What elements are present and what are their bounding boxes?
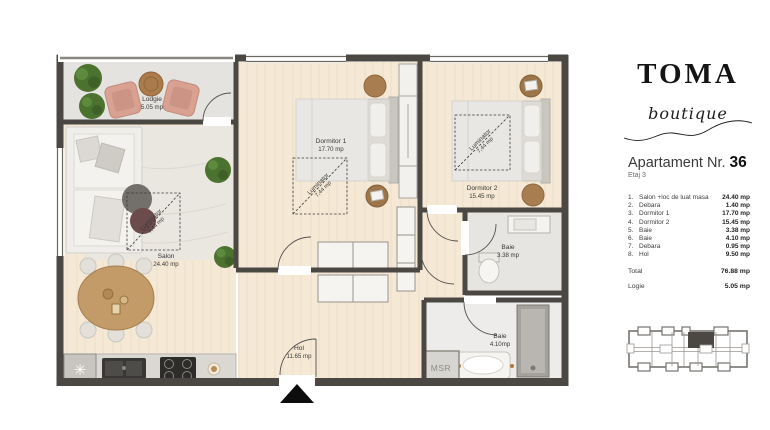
room-row: 5.Baie3.38 mp xyxy=(628,227,750,235)
corridor-floor xyxy=(420,212,465,300)
hol-label: Hol xyxy=(294,345,304,352)
brand-tagline-zone: boutique xyxy=(626,98,750,146)
brand-name: TOMA xyxy=(626,58,750,91)
logie-area: 5.05 mp xyxy=(725,283,750,290)
page: ✳ xyxy=(0,0,770,430)
room-row: 1.Salon +loc de luat masa24.40 mp xyxy=(628,194,750,202)
svg-text:11.65 mp: 11.65 mp xyxy=(287,353,313,360)
tagline-flourish xyxy=(622,116,754,144)
room-row: 6.Baie4.10 mp xyxy=(628,235,750,243)
logie-row: Logie 5.05 mp xyxy=(628,283,750,290)
room-row: 7.Debara0.95 mp xyxy=(628,243,750,251)
lodgie-label: Lodgie xyxy=(142,96,162,103)
salon-label: Salon xyxy=(158,253,175,260)
armchair xyxy=(104,81,143,120)
svg-text:3.38 mp: 3.38 mp xyxy=(497,252,520,259)
svg-text:4.10mp: 4.10mp xyxy=(490,341,511,348)
room-row: 3.Dormitor 117.70 mp xyxy=(628,210,750,218)
dining-set xyxy=(78,254,154,342)
bed xyxy=(452,99,550,183)
apartment-title: Apartament Nr. 36 xyxy=(628,154,747,172)
msr-room: MSR xyxy=(423,351,459,382)
nightstand xyxy=(522,184,544,206)
total-row: Total 76.88 mp xyxy=(628,268,750,275)
total-area: 76.88 mp xyxy=(721,268,750,275)
room-row: 4.Dormitor 215.45 mp xyxy=(628,219,750,227)
nightstand xyxy=(364,75,386,97)
room-row: 2.Debara1.40 mp xyxy=(628,202,750,210)
dormitor1-label: Dormitor 1 xyxy=(316,138,347,145)
room-list: 1.Salon +loc de luat masa24.40 mp 2.Deba… xyxy=(628,194,750,260)
building-key-plan xyxy=(626,324,750,374)
dormitor2-label: Dormitor 2 xyxy=(467,185,498,192)
logie-label: Logie xyxy=(628,283,645,290)
baie2-label: Baie xyxy=(493,333,507,340)
storage-column xyxy=(397,207,415,291)
floor-plan: ✳ xyxy=(50,46,575,408)
plant xyxy=(214,246,236,268)
info-panel: TOMA boutique Apartament Nr. 36 Etaj 3 1… xyxy=(626,58,750,388)
svg-text:24.40 mp: 24.40 mp xyxy=(153,261,179,268)
plant xyxy=(79,93,105,119)
room-row: 8.Hol9.50 mp xyxy=(628,251,750,259)
dining-table xyxy=(78,266,154,330)
plant xyxy=(74,64,102,92)
coffee-table xyxy=(139,72,163,96)
svg-text:17.70 mp: 17.70 mp xyxy=(318,146,344,153)
total-label: Total xyxy=(628,268,642,275)
baie1-label: Baie xyxy=(501,244,515,251)
svg-text:15.45 mp: 15.45 mp xyxy=(469,193,495,200)
floor-label: Etaj 3 xyxy=(628,172,646,179)
apartment-title-prefix: Apartament Nr. xyxy=(628,155,726,171)
plant xyxy=(205,157,231,183)
apartment-number: 36 xyxy=(730,154,747,171)
fridge-asterisk-icon: ✳ xyxy=(74,362,87,379)
svg-text:5.05 mp: 5.05 mp xyxy=(141,104,164,111)
msr-label: MSR xyxy=(431,363,451,373)
armchair xyxy=(162,79,201,118)
